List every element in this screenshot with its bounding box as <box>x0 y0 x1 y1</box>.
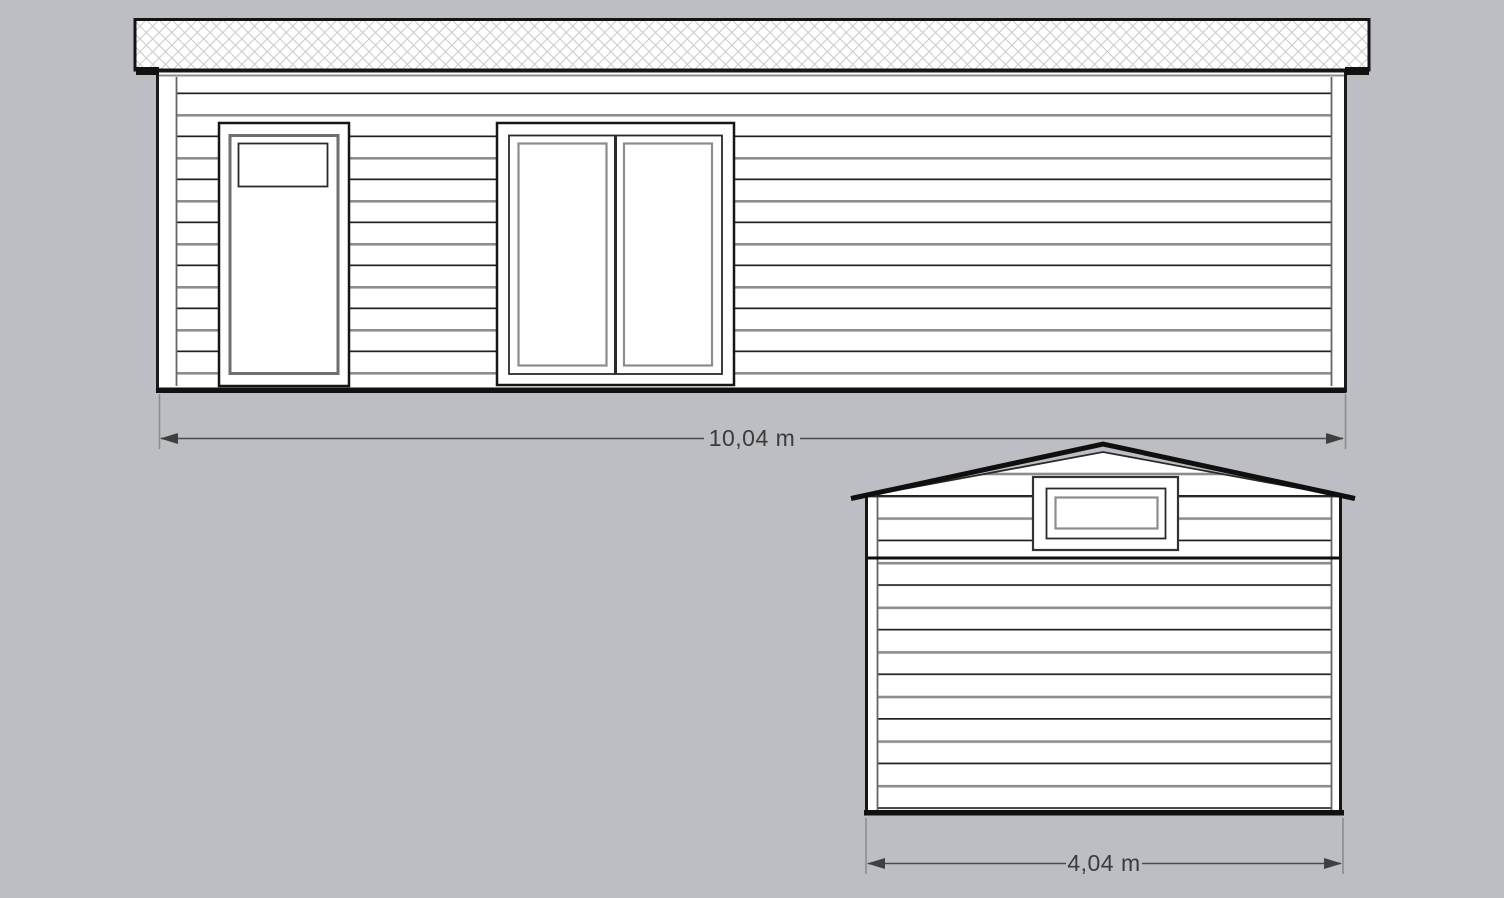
gable-window-glass <box>1056 498 1158 529</box>
gable-window <box>1033 477 1178 550</box>
entrance-door <box>219 123 349 386</box>
gable-wall-bottom-edge <box>864 810 1344 816</box>
window-glass-left <box>519 144 607 366</box>
roof-fascia-left-end <box>136 67 159 75</box>
gable-elevation-view: 4,04 m <box>851 444 1355 876</box>
elevation-drawing-canvas: 10,04 m <box>0 0 1504 898</box>
roof-fascia-right-end <box>1345 67 1369 75</box>
elevation-drawing: 10,04 m <box>0 0 1504 898</box>
window-glass-right <box>624 144 712 366</box>
front-width-label: 10,04 m <box>709 425 796 451</box>
front-elevation-view: 10,04 m <box>135 20 1369 452</box>
gable-width-label: 4,04 m <box>1067 850 1140 876</box>
double-window <box>497 123 734 385</box>
roof-fascia <box>135 20 1369 71</box>
front-wall-bottom-edge <box>156 388 1346 394</box>
door-glass-panel <box>239 144 328 187</box>
